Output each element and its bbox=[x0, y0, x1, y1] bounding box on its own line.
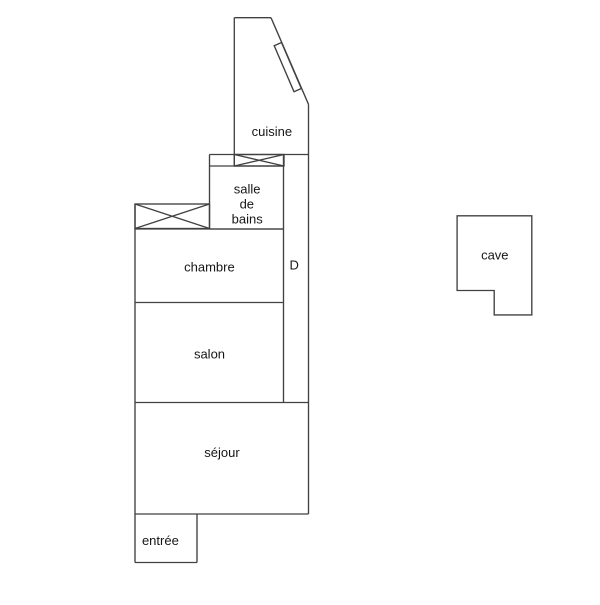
svg-text:entrée: entrée bbox=[142, 533, 179, 548]
svg-text:de: de bbox=[240, 196, 254, 211]
svg-text:D: D bbox=[290, 257, 299, 272]
svg-text:salle: salle bbox=[234, 181, 261, 196]
svg-text:cave: cave bbox=[481, 247, 508, 262]
svg-text:séjour: séjour bbox=[204, 445, 240, 460]
svg-text:chambre: chambre bbox=[184, 260, 235, 275]
svg-text:salon: salon bbox=[194, 347, 225, 362]
svg-text:cuisine: cuisine bbox=[252, 124, 292, 139]
svg-text:bains: bains bbox=[232, 211, 264, 226]
